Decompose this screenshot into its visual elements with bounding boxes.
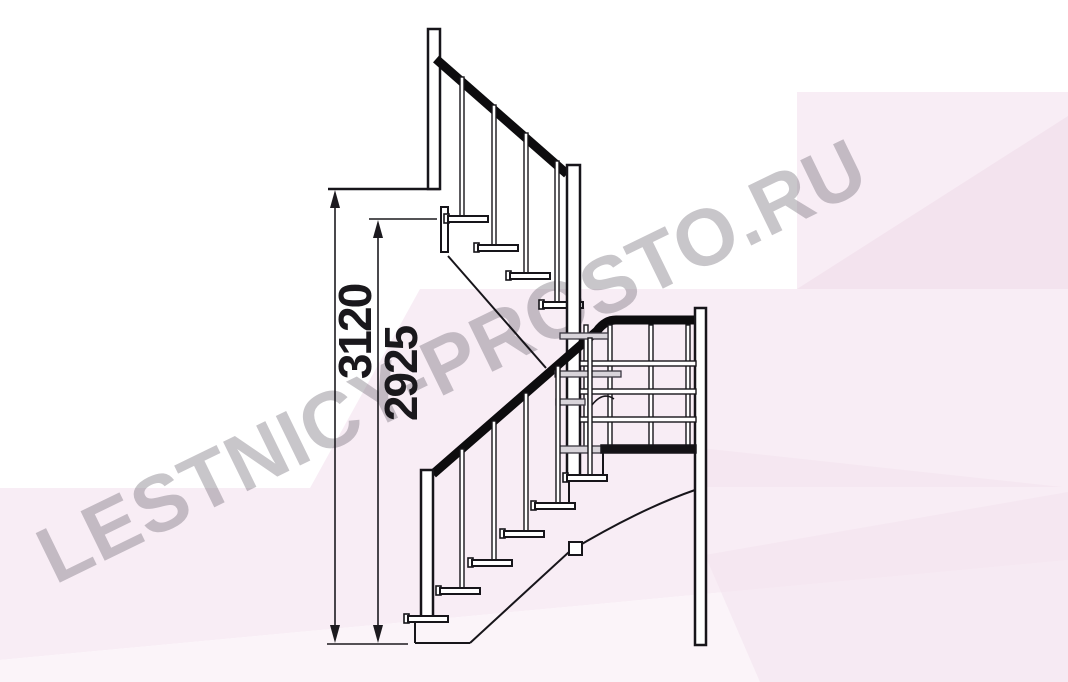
baluster	[460, 77, 464, 217]
baluster	[555, 161, 559, 303]
baluster	[492, 421, 496, 560]
mid-newel-post	[567, 165, 580, 477]
baluster	[460, 449, 464, 588]
baluster	[524, 393, 528, 531]
baluster	[492, 105, 496, 246]
landing-right-post	[695, 308, 706, 645]
bottom-newel-post	[421, 470, 433, 618]
tread	[478, 245, 518, 251]
winder-rail	[580, 417, 696, 422]
arrow-up-icon	[373, 220, 383, 238]
tread	[472, 560, 512, 566]
tread	[567, 475, 607, 481]
top-newel-post	[428, 29, 440, 189]
staircase-drawing-canvas: LESTNICY-PROSTO.RU	[0, 0, 1068, 682]
baluster	[556, 366, 560, 503]
dimension-label-partial: 2925	[375, 325, 427, 421]
landing-floor	[601, 445, 696, 453]
winder-tread	[559, 446, 602, 453]
baluster	[686, 325, 690, 447]
baluster	[608, 325, 612, 447]
tread	[510, 273, 550, 279]
baluster	[588, 338, 592, 475]
stringer-notch	[569, 542, 582, 555]
arrow-up-icon	[330, 190, 340, 208]
tread	[504, 531, 544, 537]
dimension-label-total: 3120	[329, 284, 381, 379]
winder-rail	[580, 361, 696, 366]
tread	[535, 503, 575, 509]
tread	[448, 216, 488, 222]
winder-rail	[580, 389, 696, 394]
upper-handrail	[436, 59, 567, 174]
staircase-elevation-drawing: LESTNICY-PROSTO.RU	[0, 0, 1068, 682]
winder-tread	[560, 333, 608, 339]
tread	[440, 588, 480, 594]
baluster	[524, 133, 528, 275]
baluster	[649, 325, 653, 447]
